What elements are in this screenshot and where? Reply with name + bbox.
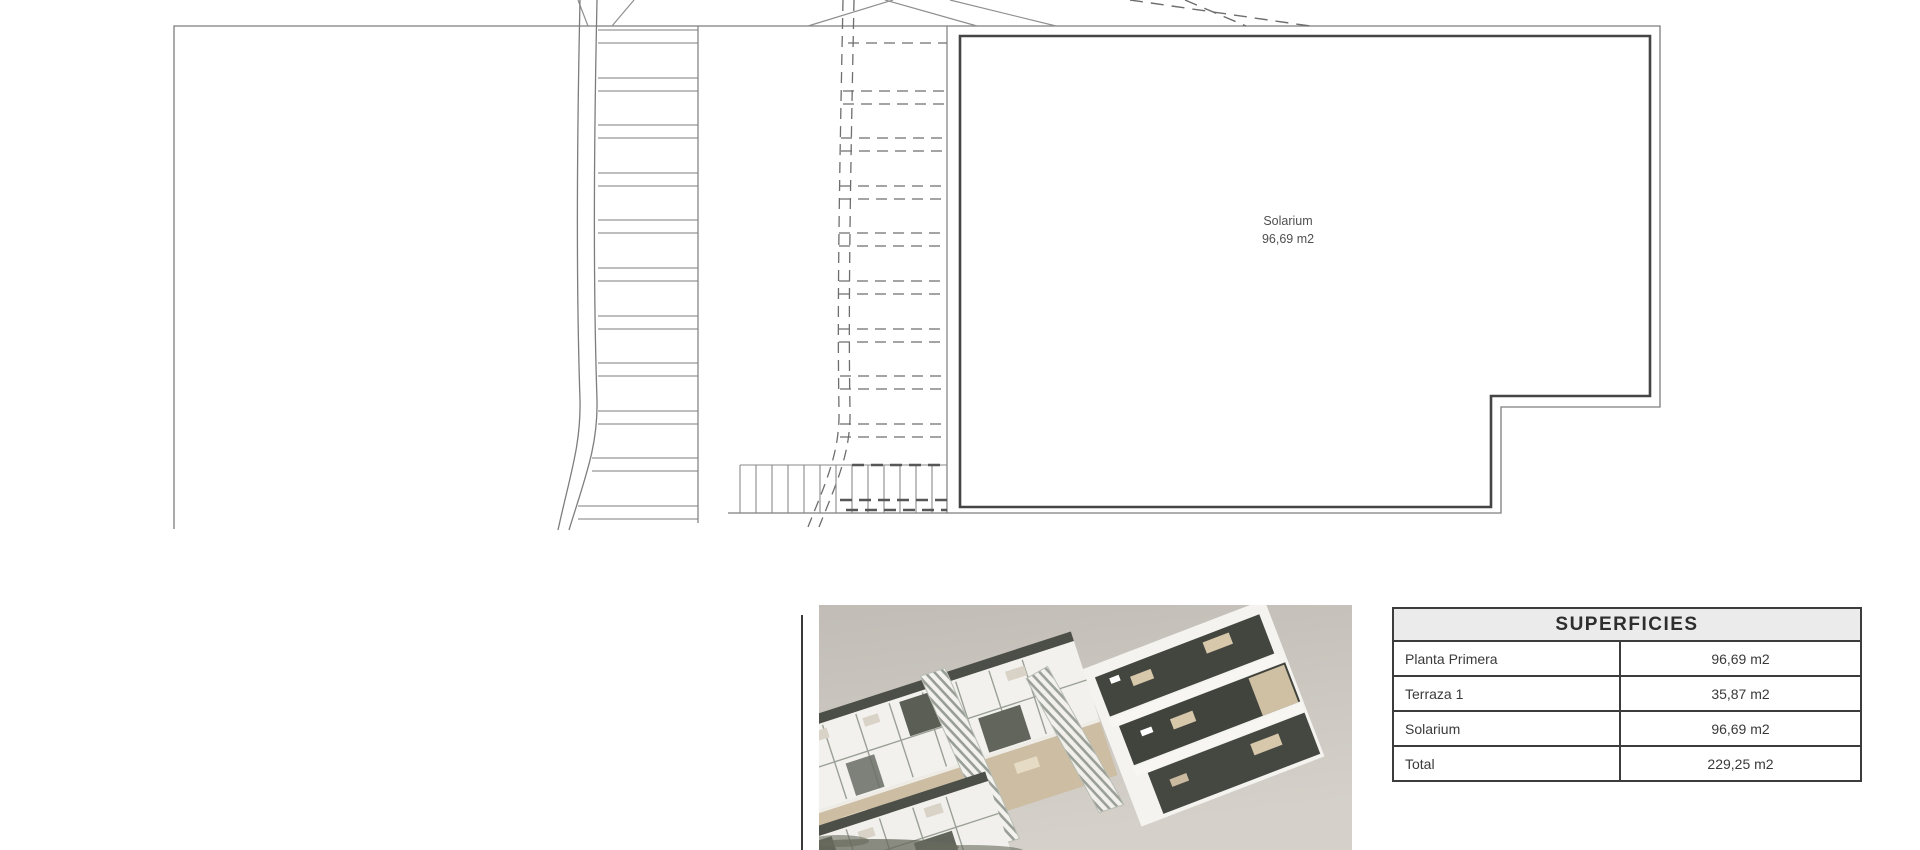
site-boundary-outline: [174, 26, 1660, 529]
plan-sheet: Solarium 96,69 m2: [0, 0, 1920, 850]
solarium-area-label: 96,69 m2: [1262, 232, 1314, 246]
row-label: Planta Primera: [1394, 642, 1621, 675]
construction-lines-solid: [578, 0, 1056, 26]
table-row: Terraza 1 35,87 m2: [1394, 677, 1860, 712]
staircase-dashed: [808, 0, 947, 527]
construction-lines-dashed: [1130, 0, 1310, 26]
row-label: Total: [1394, 747, 1621, 780]
surfaces-table-title: SUPERFICIES: [1394, 609, 1860, 642]
surfaces-table: SUPERFICIES Planta Primera 96,69 m2 Terr…: [1392, 607, 1862, 782]
solarium-label: Solarium: [1263, 214, 1312, 228]
row-label: Solarium: [1394, 712, 1621, 745]
row-label: Terraza 1: [1394, 677, 1621, 710]
row-value: 96,69 m2: [1621, 642, 1860, 675]
staircase-solid: [558, 0, 698, 530]
row-value: 229,25 m2: [1621, 747, 1860, 780]
row-value: 96,69 m2: [1621, 712, 1860, 745]
render-illustration: [819, 605, 1352, 850]
table-row: Planta Primera 96,69 m2: [1394, 642, 1860, 677]
solarium-outline: [960, 36, 1650, 507]
railing-comb: [740, 465, 947, 513]
table-row: Solarium 96,69 m2: [1394, 712, 1860, 747]
landing-dashed-bold: [840, 465, 947, 510]
render-image: [819, 605, 1352, 850]
table-row: Total 229,25 m2: [1394, 747, 1860, 780]
floor-plan-drawing: Solarium 96,69 m2: [0, 0, 1920, 560]
section-divider-line: [801, 615, 803, 850]
row-value: 35,87 m2: [1621, 677, 1860, 710]
